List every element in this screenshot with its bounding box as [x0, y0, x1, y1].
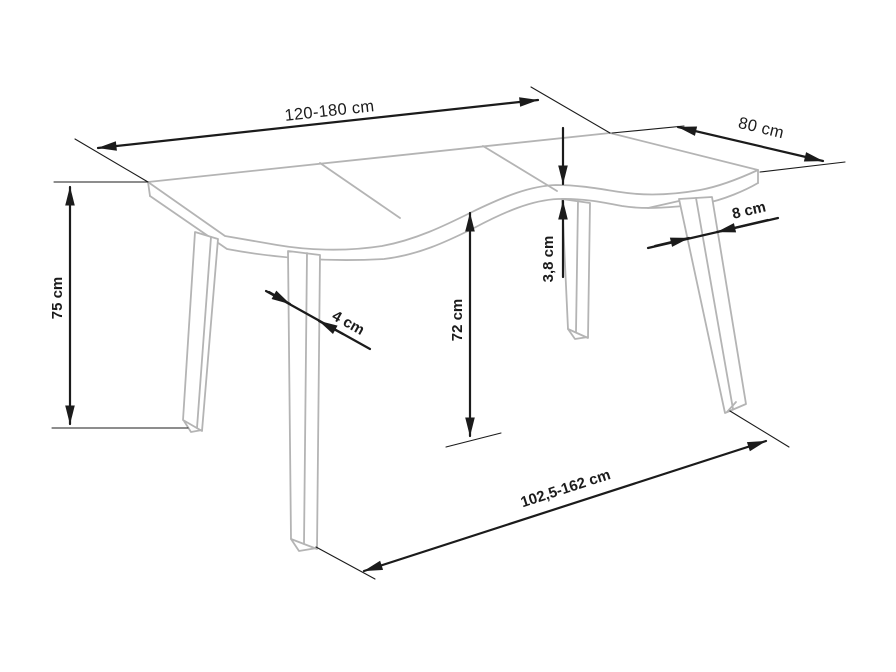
- front-right-leg: [679, 197, 746, 413]
- table-top-surface: [148, 133, 758, 250]
- dim-base-span-label: 102,5-162 cm: [519, 466, 613, 511]
- dim-top-thickness-label: 3,8 cm: [540, 236, 557, 283]
- diagram-svg: 120-180 cm 80 cm 75 cm 72 cm: [0, 0, 896, 672]
- dim-underside-clearance-label: 72 cm: [449, 299, 466, 342]
- rear-left-leg: [183, 232, 218, 431]
- dim-left-leg-width-label: 4 cm: [329, 307, 367, 338]
- dim-right-leg-width-label: 8 cm: [730, 198, 767, 222]
- dim-top-depth-label: 80 cm: [736, 114, 785, 142]
- dim-underside-clearance: 72 cm: [446, 213, 501, 447]
- dim-table-height: 75 cm: [49, 182, 188, 428]
- table-dimension-diagram: 120-180 cm 80 cm 75 cm 72 cm: [0, 0, 896, 672]
- dim-base-span: 102,5-162 cm: [316, 411, 789, 579]
- dim-table-height-label: 75 cm: [49, 277, 66, 320]
- dim-top-length-label: 120-180 cm: [284, 97, 376, 125]
